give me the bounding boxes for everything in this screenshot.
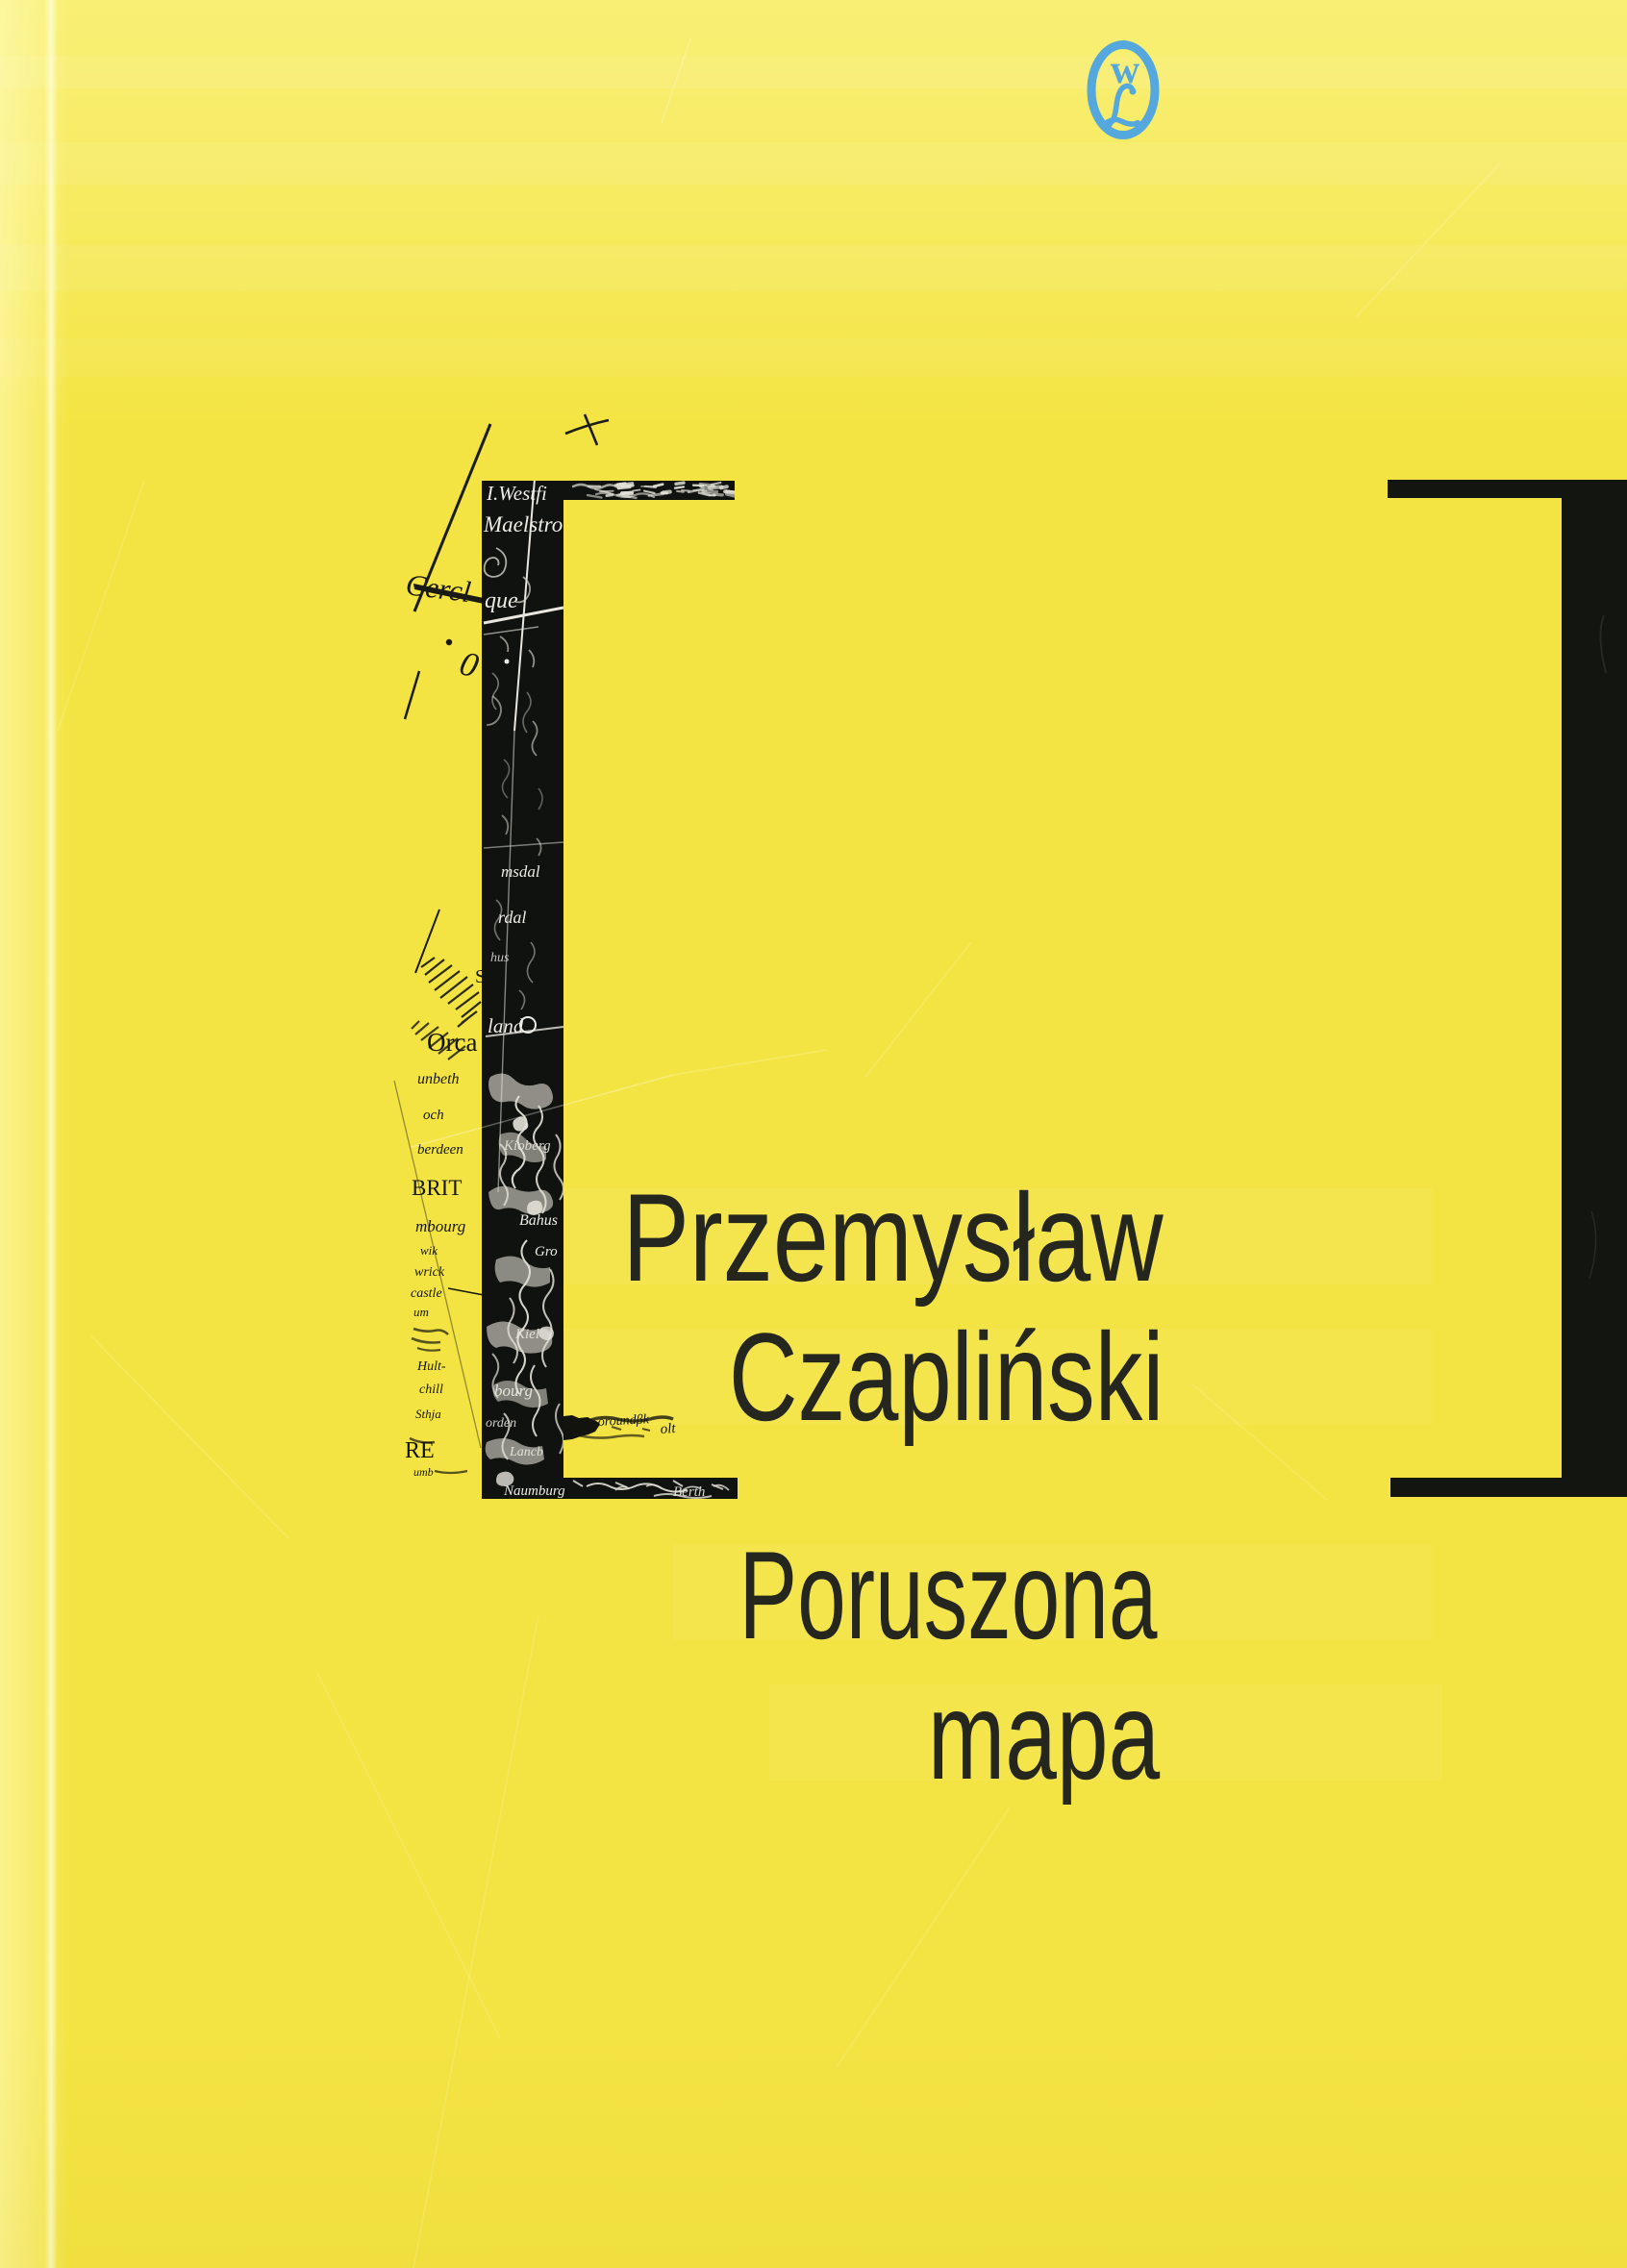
svg-text:0: 0 <box>456 643 483 685</box>
svg-text:chill: chill <box>419 1383 443 1397</box>
svg-text:och: och <box>423 1108 444 1123</box>
svg-text:Sthja: Sthja <box>415 1407 441 1421</box>
svg-text:land: land <box>488 1014 524 1037</box>
svg-text:msdal: msdal <box>501 862 540 881</box>
svg-text:um: um <box>413 1305 429 1319</box>
svg-text:berdeen: berdeen <box>417 1142 463 1158</box>
svg-text:mbourg: mbourg <box>415 1217 465 1235</box>
svg-text:BRIT: BRIT <box>412 1176 462 1200</box>
svg-text:Maelstro: Maelstro <box>483 512 563 536</box>
svg-text:oroundβk: oroundβk <box>597 1412 650 1430</box>
svg-text:unbeth: unbeth <box>417 1071 460 1087</box>
svg-text:umb: umb <box>413 1465 434 1479</box>
svg-text:hus: hus <box>490 951 510 965</box>
svg-text:wik: wik <box>420 1243 438 1258</box>
svg-text:olt: olt <box>660 1421 677 1437</box>
svg-text:que: que <box>485 588 518 613</box>
svg-text:castle: castle <box>411 1286 442 1301</box>
svg-text:Bahus: Bahus <box>519 1212 558 1229</box>
svg-text:I.Westfi: I.Westfi <box>486 482 547 505</box>
svg-text:Hult-: Hult- <box>416 1359 446 1374</box>
svg-text:Naumburg: Naumburg <box>503 1483 565 1499</box>
svg-text:wrick: wrick <box>414 1265 445 1280</box>
svg-text:rdal: rdal <box>498 908 526 927</box>
svg-text:orden: orden <box>486 1416 516 1431</box>
svg-text:Orca: Orca <box>427 1028 477 1057</box>
svg-text:Berth: Berth <box>673 1484 705 1500</box>
svg-text:Gro: Gro <box>535 1244 558 1259</box>
